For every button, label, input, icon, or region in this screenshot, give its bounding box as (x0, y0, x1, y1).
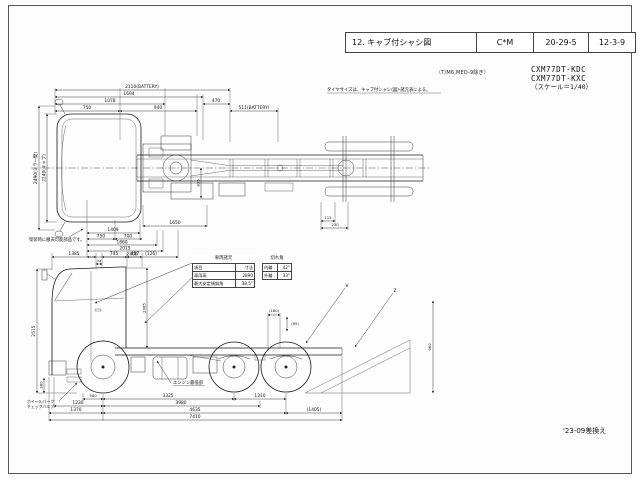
svg-text:470: 470 (212, 98, 221, 104)
drawing-sheet: 12. キャブ付シャシ図 C*M 20-29-5 12-3-9 （T/M6,ME… (0, 0, 640, 480)
revision-note: '23-09差換え (563, 426, 606, 436)
transmission-note: （T/M6,MED-9除き） (436, 69, 489, 76)
battery-side (193, 357, 217, 373)
frame-side (115, 348, 342, 355)
svg-text:1078: 1078 (104, 98, 115, 104)
tire-size-note: タイヤサイズは、キャブ付シャシ(図)-諸元表による。 (327, 86, 441, 93)
svg-text:4635: 4635 (189, 407, 200, 413)
svg-text:(180): (180) (269, 308, 280, 313)
cab-side (42, 267, 129, 382)
spec-header-value: 寸法 (235, 264, 254, 271)
svg-text:7410: 7410 (189, 414, 200, 420)
model-codes: CXM77DT-KDC CXM77DT-KXC （スケール＝1/40） (531, 66, 592, 92)
fuel-tank-plan (171, 183, 213, 199)
top-view-drawing: 2110(BATTERY) 1694 1078 750 940 470 511(… (25, 80, 445, 260)
door-handle-icon (95, 309, 101, 311)
drawing-number-1: 20-29-5 (534, 33, 589, 52)
svg-text:750: 750 (97, 234, 106, 240)
exhaust-box (131, 357, 145, 372)
mirror-side-icon (42, 270, 47, 280)
side-view-dimensions-top: 1385 74 745 457 (126) (52, 251, 157, 270)
svg-text:500: 500 (89, 393, 97, 398)
side-view-dimensions-left: 2515 380 (31, 269, 77, 393)
fuel-tank-side (153, 357, 187, 379)
svg-text:380: 380 (39, 381, 44, 389)
leaf-spring-bottom (325, 187, 413, 196)
svg-text:74: 74 (97, 259, 102, 264)
svg-text:835: 835 (196, 179, 201, 187)
valve-note: ホイールパーク チェックバルブ (27, 383, 77, 409)
svg-text:745: 745 (110, 251, 119, 257)
rear-axles-plan (325, 136, 413, 202)
top-view-dimension-mid: 835 (196, 168, 202, 198)
drawing-number-2: 12-3-9 (589, 33, 635, 52)
mirror-bottom-icon (55, 231, 63, 237)
removal-note: 架装時に撤去可能部品です。 (29, 229, 84, 243)
svg-text:3325: 3325 (162, 393, 173, 399)
spec-row: 最大安定傾斜角 38.5° (193, 279, 254, 287)
svg-text:960: 960 (427, 343, 432, 351)
svg-text:511(BATTERY): 511(BATTERY) (239, 105, 270, 111)
drawing-title: 12. キャブ付シャシ図 (346, 33, 477, 52)
svg-text:エンジン最低部: エンジン最低部 (173, 379, 204, 386)
svg-text:1370: 1370 (70, 407, 81, 413)
svg-text:タイヤサイズは、キャブ付シャシ(図)-諸元表による。: タイヤサイズは、キャブ付シャシ(図)-諸元表による。 (327, 86, 430, 93)
svg-text:1310: 1310 (254, 393, 265, 399)
cab-rear-height-dimension: 2085 (126, 268, 147, 348)
svg-text:2110(BATTERY): 2110(BATTERY) (125, 84, 159, 90)
svg-text:1385: 1385 (68, 251, 79, 257)
battery-plan (219, 183, 245, 196)
svg-text:(126): (126) (145, 251, 157, 257)
svg-text:2490(ミラー間): 2490(ミラー間) (33, 152, 39, 184)
muffler-plan (161, 136, 191, 150)
svg-text:3980: 3980 (175, 400, 186, 406)
scale-note: （スケール＝1/40） (531, 83, 592, 92)
svg-text:115: 115 (324, 215, 332, 220)
cab-step-upper (67, 369, 81, 374)
svg-text:2240(キャブ): 2240(キャブ) (41, 154, 48, 182)
model-code-2: CXM77DT-KXC (531, 75, 592, 84)
svg-text:(1405): (1405) (307, 407, 322, 413)
svg-text:700: 700 (124, 234, 133, 240)
spec-header-item: 項目 (193, 264, 235, 271)
equipment-plan (161, 136, 293, 199)
equipment-side (131, 355, 302, 379)
svg-text:Z: Z (393, 288, 396, 294)
steering-angle-table: 切れ角 内輪 42° 外輪 33° (262, 255, 292, 280)
spec-table-title: 車両諸元 (192, 255, 255, 262)
frame-plan (137, 155, 423, 181)
air-tank-plan (265, 183, 293, 191)
title-block: 12. キャブ付シャシ図 C*M 20-29-5 12-3-9 (345, 32, 636, 53)
svg-text:1650: 1650 (169, 220, 180, 226)
engine-note: エンジン最低部 (157, 361, 205, 386)
svg-text:2515: 2515 (31, 325, 37, 336)
svg-text:1409: 1409 (107, 227, 118, 233)
steer-table-title: 切れ角 (262, 255, 292, 262)
rear-phantom-body: 960 (305, 301, 433, 393)
svg-text:1230: 1230 (72, 400, 83, 406)
drawing-code: C*M (477, 33, 534, 52)
svg-text:940: 940 (154, 105, 163, 111)
svg-text:2085: 2085 (142, 303, 147, 313)
spec-table: 車両諸元 項目 寸法 車両高 2890 最大安定傾斜角 38.5° (192, 255, 255, 288)
top-view-dimensions-top: 2110(BATTERY) 1694 1078 750 940 470 511(… (55, 84, 278, 142)
svg-text:230: 230 (331, 222, 339, 227)
svg-text:V: V (345, 283, 348, 289)
svg-text:457: 457 (131, 251, 140, 257)
leaf-spring-top (325, 142, 413, 151)
svg-text:1694: 1694 (123, 91, 134, 97)
svg-text:架装時に撤去可能部品です。: 架装時に撤去可能部品です。 (29, 236, 84, 243)
svg-text:(95): (95) (291, 321, 299, 326)
wheel-arch (77, 341, 129, 367)
steer-row: 内輪 42° (263, 264, 291, 271)
steer-row: 外輪 33° (263, 271, 291, 279)
svg-text:チェックバルブ: チェックバルブ (27, 404, 54, 409)
front-bumper (49, 361, 66, 375)
spec-row: 車両高 2890 (193, 271, 254, 279)
svg-text:750: 750 (83, 105, 92, 111)
